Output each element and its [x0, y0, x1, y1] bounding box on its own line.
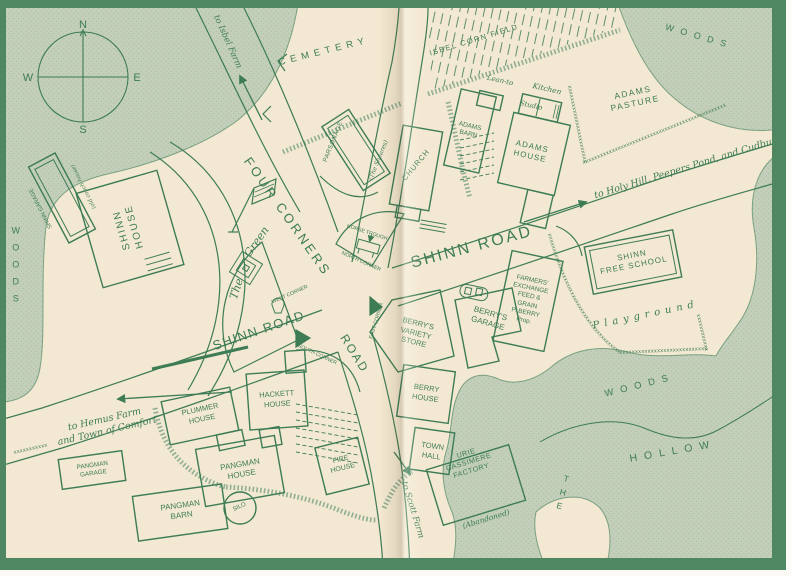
church-outline [387, 125, 442, 223]
woods-hollow [443, 150, 786, 568]
berrys-garage-outline [455, 288, 521, 368]
woods-shapes [4, 4, 786, 568]
frame-bottom [0, 558, 786, 570]
page-edge-right [786, 0, 791, 576]
frame-right [772, 0, 786, 570]
flag-icon [228, 179, 276, 232]
page-edge-bottom [0, 570, 791, 576]
silo-outline [224, 492, 256, 524]
arrow-shinn-west [152, 347, 248, 369]
gas-pump-icon [459, 283, 489, 302]
fire-house-outline [315, 437, 369, 494]
endpaper-map: xxxxxxxxxxxxxxxxxxxxxxxxxxxxxxxxxxxxxxxx… [0, 0, 791, 576]
farmers-exchange-outline [493, 251, 563, 352]
pangman-house-outline [194, 427, 290, 507]
cemetery-bracket-2 [263, 106, 271, 122]
arrow-to-hemus [118, 392, 232, 399]
woods-top-right [618, 4, 786, 130]
frame-left [0, 0, 6, 570]
shinn-house-porch [144, 252, 172, 271]
map-artwork: xxxxxxxxxxxxxxxxxxxxxxxxxxxxxxxxxxxxxxxx… [0, 0, 791, 576]
monument-icon [229, 251, 262, 284]
church-steps [419, 220, 446, 232]
west-corner-marker [296, 330, 310, 347]
bell-icon [272, 298, 284, 313]
berrys-variety-store-outline [370, 290, 454, 372]
arrow-to-holy-hill [524, 202, 586, 222]
pangman-garage-outline [58, 451, 126, 490]
shinn-house-outline [76, 170, 184, 287]
horse-trough-icon [355, 231, 382, 258]
svg-text:xxxxxxxxxxxxxxxxxxxxxxxxxxxxxx: xxxxxxxxxxxxxxxxxxxxxxxxxxxxxxxxxxxxxxxx… [546, 233, 710, 356]
frame-top [0, 0, 786, 8]
adams-barn-outline [444, 89, 497, 173]
east-corner-marker [370, 297, 382, 315]
berry-house-outline [397, 365, 456, 424]
pangman-barn-outline [132, 484, 227, 541]
isbel-corn-field-hatch [429, 6, 621, 90]
